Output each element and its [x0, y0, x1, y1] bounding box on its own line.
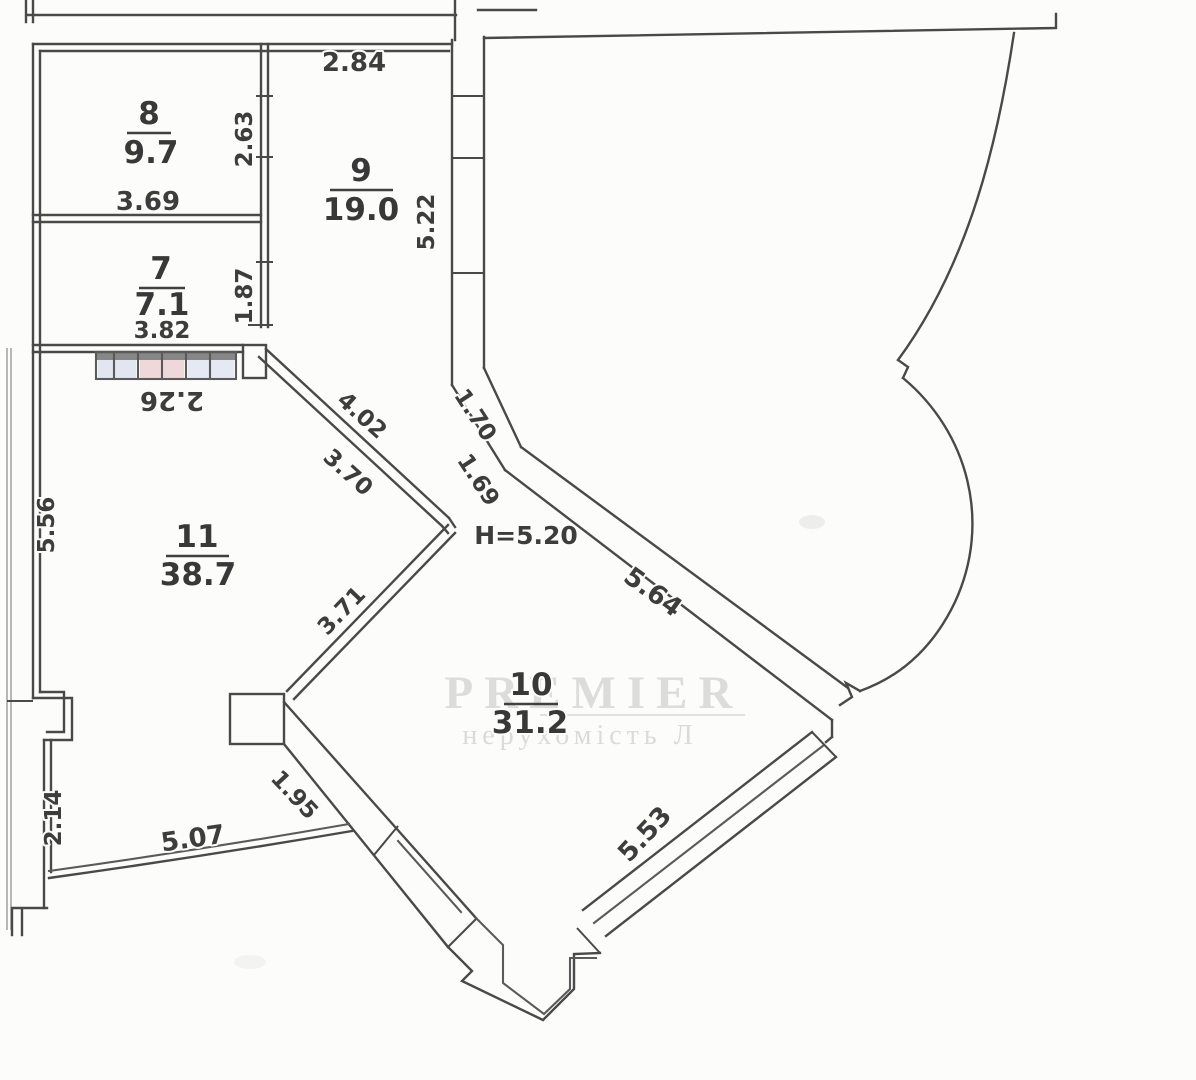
adjacent-wall-faint [7, 348, 33, 930]
scan-smudge [234, 955, 266, 969]
room8-area-label: 9.7 [124, 135, 179, 171]
room9-room11-diagonal-wall [259, 349, 455, 533]
watermark: PREMIER нерухомість Л [445, 667, 745, 751]
room8-number-label: 8 [138, 96, 160, 132]
dim-5-64: 5.64 [618, 562, 688, 624]
ceiling-height-label: H=5.20 [474, 521, 578, 550]
room11-number-label: 11 [175, 519, 218, 555]
dim-2-84: 2.84 [322, 48, 386, 78]
room10-bottom-bay [448, 918, 600, 1020]
scan-smudge [799, 515, 825, 529]
dim-2-14: 2.14 [41, 790, 67, 847]
site-boundary-lines [26, 0, 1056, 40]
dim-1-69: 1.69 [452, 449, 505, 511]
room7-number-label: 7 [150, 251, 172, 287]
room9-right-wall [452, 37, 484, 385]
dim-1-95: 1.95 [265, 766, 323, 825]
window-radiator [96, 352, 236, 379]
floor-plan-page: PREMIER нерухомість Л [0, 0, 1196, 1080]
dim-1-70: 1.70 [449, 384, 502, 446]
room10-area-label: 31.2 [492, 705, 569, 741]
dim-2-63: 2.63 [232, 111, 258, 168]
room11-area-label: 38.7 [160, 557, 237, 593]
top-exterior-wall [33, 44, 452, 51]
dim-5-22: 5.22 [414, 194, 440, 251]
dim-3-82: 3.82 [134, 318, 191, 344]
west-pillar [230, 694, 284, 744]
outer-curved-wall [840, 33, 1014, 705]
watermark-title: PREMIER [445, 667, 744, 719]
room10-se-wall-window [583, 732, 836, 936]
dim-5-56: 5.56 [34, 497, 60, 554]
dim-3-70: 3.70 [318, 444, 378, 501]
dim-2-26: 2.26 [140, 385, 204, 415]
room10-sw-wall-window [284, 702, 476, 947]
room9-number-label: 9 [350, 153, 372, 189]
room10-nw-wall [287, 525, 455, 699]
dim-3-71: 3.71 [313, 582, 371, 641]
dim-1-87: 1.87 [232, 268, 258, 325]
dim-3-69: 3.69 [116, 187, 180, 217]
floor-plan-drawing: PREMIER нерухомість Л [0, 0, 1196, 1080]
dim-5-53: 5.53 [612, 801, 678, 868]
room9-area-label: 19.0 [323, 192, 400, 228]
room10-number-label: 10 [509, 667, 552, 703]
